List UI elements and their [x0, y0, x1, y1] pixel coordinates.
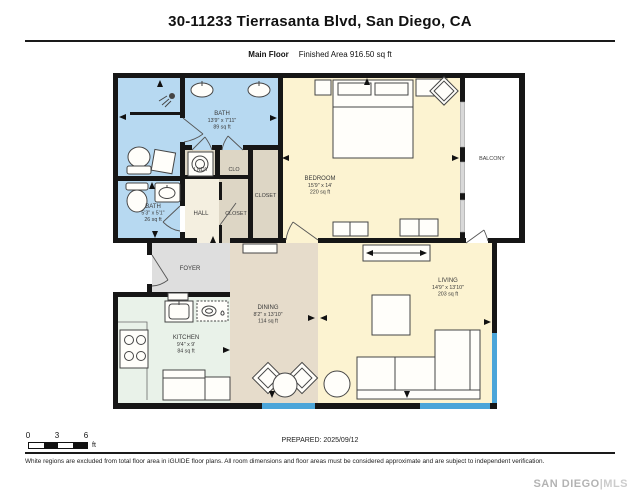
bath-small-area: 26 sq ft	[144, 217, 162, 223]
balcony-label: BALCONY	[479, 156, 505, 162]
kitchen-area: 84 sq ft	[177, 349, 195, 355]
toilet-icon	[127, 147, 151, 174]
mls-logo: SAN DIEGO|MLS	[533, 478, 628, 490]
living-area: 203 sq ft	[438, 292, 459, 298]
page-title: 30-11233 Tierrasanta Blvd, San Diego, CA	[0, 13, 640, 30]
mls-logo-secondary: |MLS	[600, 478, 628, 490]
stove-icon	[120, 330, 148, 368]
floorplan-page: 30-11233 Tierrasanta Blvd, San Diego, CA…	[0, 0, 640, 495]
finished-area-label: Finished Area 916.50 sq ft	[299, 50, 392, 59]
bath-small-dims: 5'3" x 5'1"	[141, 211, 164, 217]
bath-main-area: 89 sq ft	[213, 125, 231, 131]
living-side-window	[492, 333, 497, 403]
sink-icon	[155, 183, 180, 202]
prepared-date: PREPARED: 2025/09/12	[0, 437, 640, 444]
bath-small-label: BATH	[145, 204, 161, 210]
side-table-icon	[324, 371, 350, 397]
mls-logo-primary: SAN DIEGO	[533, 478, 599, 490]
kitchen-dims: 9'4" x 9'	[177, 342, 195, 348]
clo-area	[220, 150, 248, 178]
foyer-label: FOYER	[180, 266, 201, 272]
coffee-table-icon	[372, 295, 410, 335]
floor-label: Main Floor	[248, 50, 288, 59]
dining-dims: 8'2" x 13'10"	[253, 312, 282, 318]
living-dims: 14'9" x 13'10"	[432, 285, 464, 291]
kitchen-label: KITCHEN	[173, 335, 199, 341]
dining-label: DINING	[258, 305, 279, 311]
closet-a-label: CLOSET	[255, 193, 277, 199]
bed-icon	[333, 80, 413, 158]
bench-icon	[400, 219, 438, 236]
bedroom-label: BEDROOM	[304, 176, 335, 182]
balcony-slider-mid	[461, 162, 465, 193]
closet-b-label: CLOSET	[225, 211, 247, 217]
floorplan-drawing: BATH 13'9" x 7'11" 89 sq ft BATH 5'3" x …	[0, 60, 640, 425]
nightstand-icon	[315, 80, 331, 95]
bench-icon	[333, 222, 368, 236]
dishwasher-icon	[197, 301, 228, 321]
console-table-icon	[243, 244, 277, 253]
hamper-icon	[151, 149, 175, 173]
bath-main-label: BATH	[214, 111, 230, 117]
balcony-slider-bottom	[461, 200, 465, 232]
balcony-slider-top	[461, 102, 465, 147]
living-window	[420, 403, 490, 409]
bath-main-dims: 13'9" x 7'11"	[208, 118, 237, 124]
clo-label: CLO	[228, 167, 239, 173]
microwave-icon	[168, 293, 188, 300]
hall-label: HALL	[193, 211, 209, 217]
bedroom-dims: 15'9" x 14'	[308, 183, 332, 189]
dining-area: 114 sq ft	[258, 319, 278, 325]
disclaimer-text: White regions are excluded from total fl…	[25, 458, 615, 465]
header-divider	[25, 40, 615, 42]
dining-table-icon	[273, 373, 297, 397]
living-label: LIVING	[438, 278, 458, 284]
footer-divider	[25, 452, 615, 454]
dining-window	[262, 403, 315, 409]
laundry-label: LNDY	[194, 167, 209, 173]
floor-subheader: Main FloorFinished Area 916.50 sq ft	[0, 50, 640, 59]
sink-icon	[165, 301, 193, 322]
bedroom-area: 220 sq ft	[310, 190, 331, 196]
tv-console-icon	[363, 245, 430, 261]
